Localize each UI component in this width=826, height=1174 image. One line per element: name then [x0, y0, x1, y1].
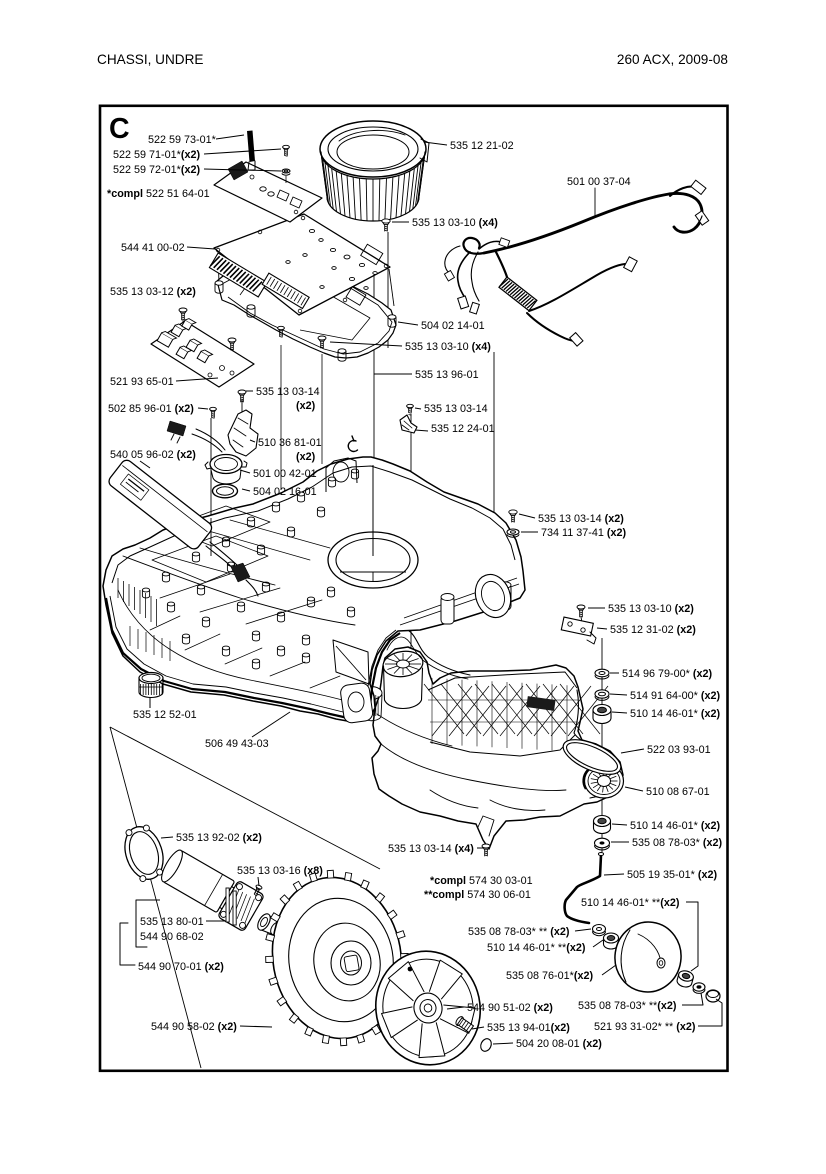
svg-text:*compl 574 30 03-01: *compl 574 30 03-01	[430, 875, 533, 887]
svg-text:260 ACX, 2009-08: 260 ACX, 2009-08	[617, 52, 728, 67]
svg-text:522 59 72-01*(x2): 522 59 72-01*(x2)	[113, 164, 200, 176]
svg-text:504 02 14-01: 504 02 14-01	[421, 320, 485, 332]
svg-text:(x2): (x2)	[296, 400, 316, 412]
svg-text:510 08 67-01: 510 08 67-01	[646, 786, 710, 798]
svg-text:522 59 73-01*: 522 59 73-01*	[148, 134, 217, 146]
svg-text:(x2): (x2)	[296, 451, 316, 463]
svg-text:535 13 03-12 (x2): 535 13 03-12 (x2)	[110, 286, 196, 298]
svg-text:535 12 31-02 (x2): 535 12 31-02 (x2)	[610, 624, 696, 636]
svg-text:510 14 46-01* (x2): 510 14 46-01* (x2)	[630, 820, 720, 832]
svg-text:*compl 522 51 64-01: *compl 522 51 64-01	[107, 188, 210, 200]
svg-text:521 93 31-02* ** (x2): 521 93 31-02* ** (x2)	[594, 1021, 696, 1033]
svg-text:501 00 37-04: 501 00 37-04	[567, 176, 631, 188]
svg-text:510 36 81-01: 510 36 81-01	[258, 437, 322, 449]
svg-text:**compl 574 30 06-01: **compl 574 30 06-01	[424, 889, 531, 901]
svg-text:540 05 96-02 (x2): 540 05 96-02 (x2)	[110, 449, 196, 461]
svg-text:535 13 03-10 (x4): 535 13 03-10 (x4)	[412, 217, 498, 229]
svg-text:535 13 80-01: 535 13 80-01	[140, 916, 204, 928]
svg-text:506 49 43-03: 506 49 43-03	[205, 738, 269, 750]
svg-text:535 08 76-01*(x2): 535 08 76-01*(x2)	[506, 970, 593, 982]
svg-text:510 14 46-01* **(x2): 510 14 46-01* **(x2)	[581, 897, 680, 909]
svg-text:514 91 64-00* (x2): 514 91 64-00* (x2)	[630, 690, 720, 702]
svg-text:502 85 96-01 (x2): 502 85 96-01 (x2)	[108, 403, 194, 415]
svg-text:544 90 70-01 (x2): 544 90 70-01 (x2)	[138, 961, 224, 973]
svg-text:504 02 16-01: 504 02 16-01	[253, 486, 317, 498]
svg-text:535 08 78-03* (x2): 535 08 78-03* (x2)	[632, 837, 722, 849]
svg-text:535 13 94-01(x2): 535 13 94-01(x2)	[487, 1022, 570, 1034]
svg-text:535 13 03-10 (x4): 535 13 03-10 (x4)	[405, 341, 491, 353]
svg-text:535 12 21-02: 535 12 21-02	[450, 140, 514, 152]
svg-text:535 12 52-01: 535 12 52-01	[133, 709, 197, 721]
svg-text:514 96 79-00* (x2): 514 96 79-00* (x2)	[622, 668, 712, 680]
svg-text:544 41 00-02: 544 41 00-02	[121, 242, 185, 254]
svg-text:505 19 35-01* (x2): 505 19 35-01* (x2)	[627, 869, 717, 881]
svg-text:544 90 68-02: 544 90 68-02	[140, 931, 204, 943]
svg-text:535 13 92-02 (x2): 535 13 92-02 (x2)	[176, 832, 262, 844]
svg-text:544 90 51-02 (x2): 544 90 51-02 (x2)	[467, 1002, 553, 1014]
svg-text:535 13 03-14: 535 13 03-14	[424, 403, 488, 415]
svg-text:522 03 93-01: 522 03 93-01	[647, 744, 711, 756]
svg-text:535 08 78-03* ** (x2): 535 08 78-03* ** (x2)	[468, 926, 570, 938]
svg-text:CHASSI, UNDRE: CHASSI, UNDRE	[97, 52, 204, 67]
svg-text:535 13 03-14 (x4): 535 13 03-14 (x4)	[388, 843, 474, 855]
svg-text:522 59 71-01*(x2): 522 59 71-01*(x2)	[113, 149, 200, 161]
svg-text:535 13 03-10 (x2): 535 13 03-10 (x2)	[608, 603, 694, 615]
svg-text:510 14 46-01* **(x2): 510 14 46-01* **(x2)	[487, 942, 586, 954]
svg-text:544 90 58-02 (x2): 544 90 58-02 (x2)	[151, 1021, 237, 1033]
svg-text:535 13 96-01: 535 13 96-01	[415, 369, 479, 381]
svg-text:535 13 03-14 (x2): 535 13 03-14 (x2)	[538, 513, 624, 525]
svg-text:504 20 08-01 (x2): 504 20 08-01 (x2)	[516, 1038, 602, 1050]
svg-text:510 14 46-01* (x2): 510 14 46-01* (x2)	[630, 708, 720, 720]
svg-text:C: C	[109, 113, 130, 145]
svg-text:521 93 65-01: 521 93 65-01	[110, 376, 174, 388]
svg-text:734 11 37-41 (x2): 734 11 37-41 (x2)	[541, 527, 626, 539]
svg-text:535 12 24-01: 535 12 24-01	[431, 423, 495, 435]
svg-text:535 13 03-16 (x8): 535 13 03-16 (x8)	[237, 865, 323, 877]
svg-text:535 08 78-03* **(x2): 535 08 78-03* **(x2)	[578, 1000, 677, 1012]
svg-text:501 00 42-01: 501 00 42-01	[253, 468, 317, 480]
svg-text:535 13 03-14: 535 13 03-14	[256, 386, 320, 398]
